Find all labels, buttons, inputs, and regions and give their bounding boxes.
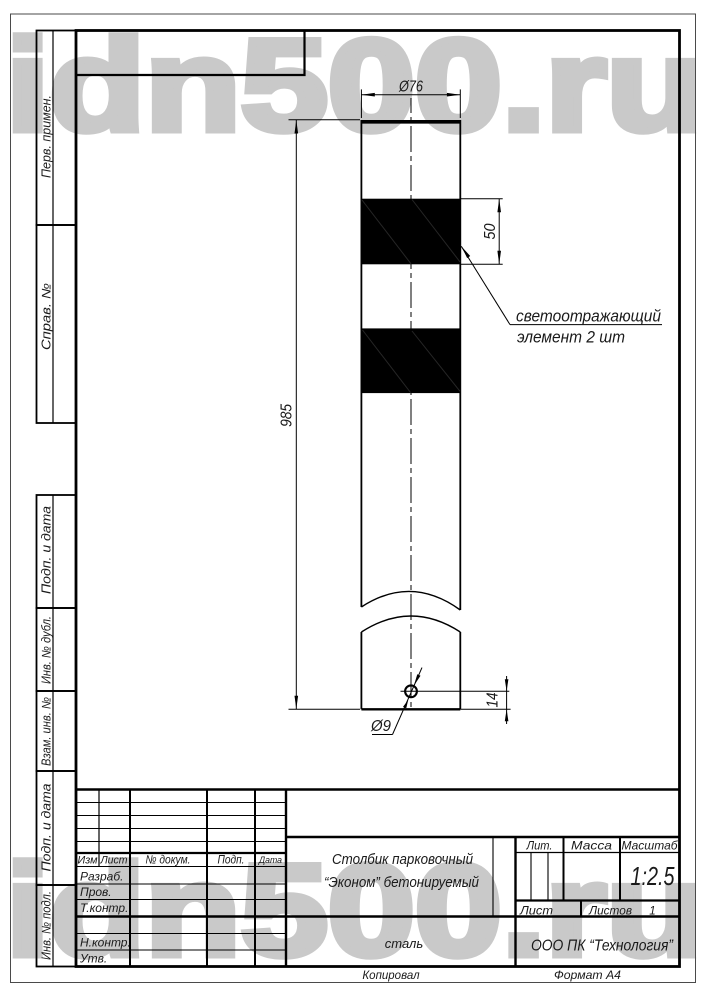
svg-text:1:2.5: 1:2.5 bbox=[631, 861, 675, 891]
svg-text:Ø76: Ø76 bbox=[398, 79, 423, 96]
svg-text:Масштаб: Масштаб bbox=[622, 839, 679, 853]
svg-text:Формат А4: Формат А4 bbox=[554, 970, 621, 982]
svg-text:Взам. инв. №: Взам. инв. № bbox=[40, 697, 54, 766]
svg-text:Утв.: Утв. bbox=[79, 952, 107, 966]
svg-text:Инв. № дубл.: Инв. № дубл. bbox=[40, 616, 54, 684]
svg-text:Листов: Листов bbox=[588, 906, 632, 918]
svg-text:985: 985 bbox=[279, 404, 296, 427]
svg-text:Масса: Масса bbox=[571, 839, 612, 853]
svg-text:сталь: сталь bbox=[385, 936, 424, 951]
svg-text:Пров.: Пров. bbox=[80, 885, 112, 899]
svg-text:Изм: Изм bbox=[78, 855, 98, 867]
svg-text:Столбик парковочный: Столбик парковочный bbox=[332, 851, 474, 868]
svg-text:элемент 2 шт: элемент 2 шт bbox=[517, 329, 625, 347]
svg-text:14: 14 bbox=[485, 692, 502, 707]
svg-text:50: 50 bbox=[482, 223, 499, 239]
svg-text:Т.контр.: Т.контр. bbox=[80, 901, 128, 915]
svg-text:Копировал: Копировал bbox=[362, 970, 420, 982]
svg-text:№ докум.: № докум. bbox=[146, 853, 191, 867]
svg-text:idn500.ru: idn500.ru bbox=[6, 12, 702, 158]
svg-text:Разраб.: Разраб. bbox=[80, 870, 123, 884]
svg-text:Перв. примен.: Перв. примен. bbox=[40, 95, 54, 178]
svg-text:Н.контр.: Н.контр. bbox=[80, 936, 131, 950]
svg-text:Ø9: Ø9 bbox=[370, 718, 391, 735]
svg-text:Лист: Лист bbox=[519, 906, 554, 918]
svg-text:Дата: Дата bbox=[258, 855, 282, 866]
svg-text:ООО ПК “Технология”: ООО ПК “Технология” bbox=[531, 938, 674, 955]
svg-text:Лит.: Лит. bbox=[526, 839, 553, 853]
svg-text:Подп.: Подп. bbox=[218, 853, 245, 867]
svg-text:светоотражающий: светоотражающий bbox=[516, 308, 661, 326]
svg-text:Лист: Лист bbox=[100, 855, 128, 867]
svg-text:Подп. и дата: Подп. и дата bbox=[40, 783, 54, 871]
svg-text:1: 1 bbox=[649, 906, 655, 918]
svg-text:Справ. №: Справ. № bbox=[40, 282, 54, 350]
svg-text:“Эконом” бетонируемый: “Эконом” бетонируемый bbox=[324, 874, 480, 891]
svg-text:Инв. № подл.: Инв. № подл. bbox=[40, 891, 54, 960]
svg-text:Подп. и дата: Подп. и дата bbox=[40, 506, 54, 594]
